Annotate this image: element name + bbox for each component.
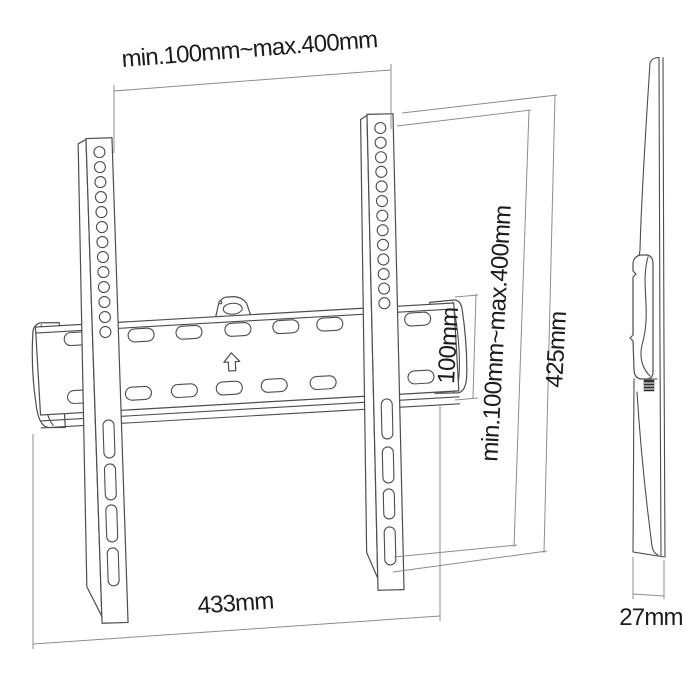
side-wall-plate-edge xyxy=(659,58,661,557)
side-panel-taper xyxy=(637,392,658,555)
side-lower-arm xyxy=(633,379,634,552)
dim-plate-height: 100mm xyxy=(433,294,478,400)
right-vesa-rail xyxy=(356,114,404,591)
technical-drawing-canvas: min.100mm~max.400mm 100mm min.100mm~max.… xyxy=(0,0,700,700)
dim-label-vesa-width: min.100mm~max.400mm xyxy=(121,26,379,73)
dim-vesa-width: min.100mm~max.400mm xyxy=(114,26,391,153)
side-bottom-edge xyxy=(633,552,664,557)
front-view xyxy=(29,114,469,624)
dim-label-total-height: 425mm xyxy=(541,311,572,388)
dim-label-vesa-height: min.100mm~max.400mm xyxy=(476,205,516,462)
side-view xyxy=(630,58,665,558)
dim-label-depth: 27mm xyxy=(619,604,682,631)
dim-label-total-width: 433mm xyxy=(197,587,275,619)
dim-label-plate-height: 100mm xyxy=(433,307,464,384)
side-panel-curve xyxy=(639,63,650,257)
dim-depth: 27mm xyxy=(619,557,682,631)
side-top-tip xyxy=(650,58,659,64)
side-screw xyxy=(644,380,654,391)
wall-mount-diagram: min.100mm~max.400mm 100mm min.100mm~max.… xyxy=(0,0,700,700)
